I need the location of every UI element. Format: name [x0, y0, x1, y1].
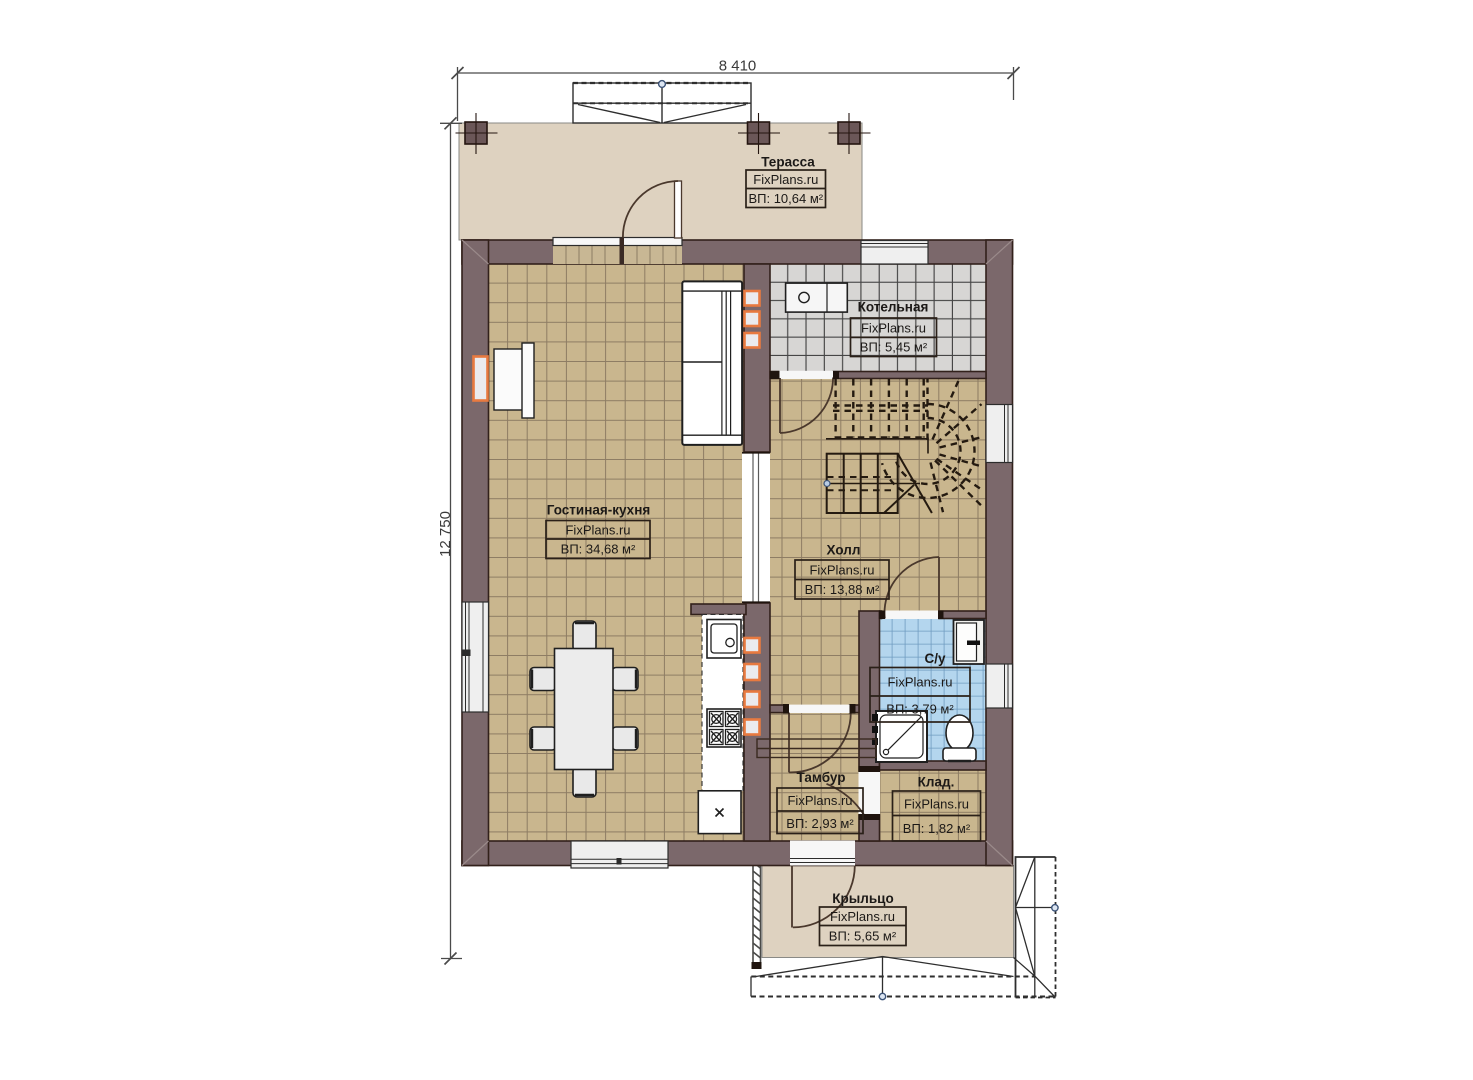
svg-text:Крыльцо: Крыльцо [832, 891, 893, 906]
svg-text:FixPlans.ru: FixPlans.ru [565, 523, 630, 538]
svg-text:FixPlans.ru: FixPlans.ru [887, 675, 952, 690]
svg-text:ВП: 13,88 м²: ВП: 13,88 м² [805, 582, 880, 597]
svg-text:ВП: 10,64 м²: ВП: 10,64 м² [748, 191, 823, 206]
svg-text:8 410: 8 410 [719, 58, 757, 75]
svg-text:FixPlans.ru: FixPlans.ru [753, 172, 818, 187]
svg-text:ВП: 2,93 м²: ВП: 2,93 м² [786, 816, 854, 831]
svg-text:Клад.: Клад. [918, 775, 955, 790]
svg-text:С/у: С/у [924, 651, 946, 666]
svg-text:FixPlans.ru: FixPlans.ru [861, 321, 926, 336]
svg-text:ВП: 3,79 м²: ВП: 3,79 м² [886, 702, 954, 717]
svg-text:FixPlans.ru: FixPlans.ru [904, 797, 969, 812]
svg-text:FixPlans.ru: FixPlans.ru [787, 793, 852, 808]
svg-text:Терасса: Терасса [761, 155, 815, 170]
svg-text:ВП: 1,82 м²: ВП: 1,82 м² [903, 821, 971, 836]
svg-text:FixPlans.ru: FixPlans.ru [809, 563, 874, 578]
svg-text:ВП: 5,65 м²: ВП: 5,65 м² [829, 929, 897, 944]
svg-text:12 750: 12 750 [437, 511, 454, 557]
svg-text:ВП: 34,68 м²: ВП: 34,68 м² [561, 542, 636, 557]
svg-text:Тамбур: Тамбур [797, 770, 846, 785]
svg-text:ВП: 5,45 м²: ВП: 5,45 м² [860, 340, 928, 355]
svg-text:Гостиная-кухня: Гостиная-кухня [547, 503, 650, 518]
svg-text:Котельная: Котельная [858, 300, 929, 315]
svg-text:Холл: Холл [827, 543, 861, 558]
svg-text:FixPlans.ru: FixPlans.ru [830, 909, 895, 924]
